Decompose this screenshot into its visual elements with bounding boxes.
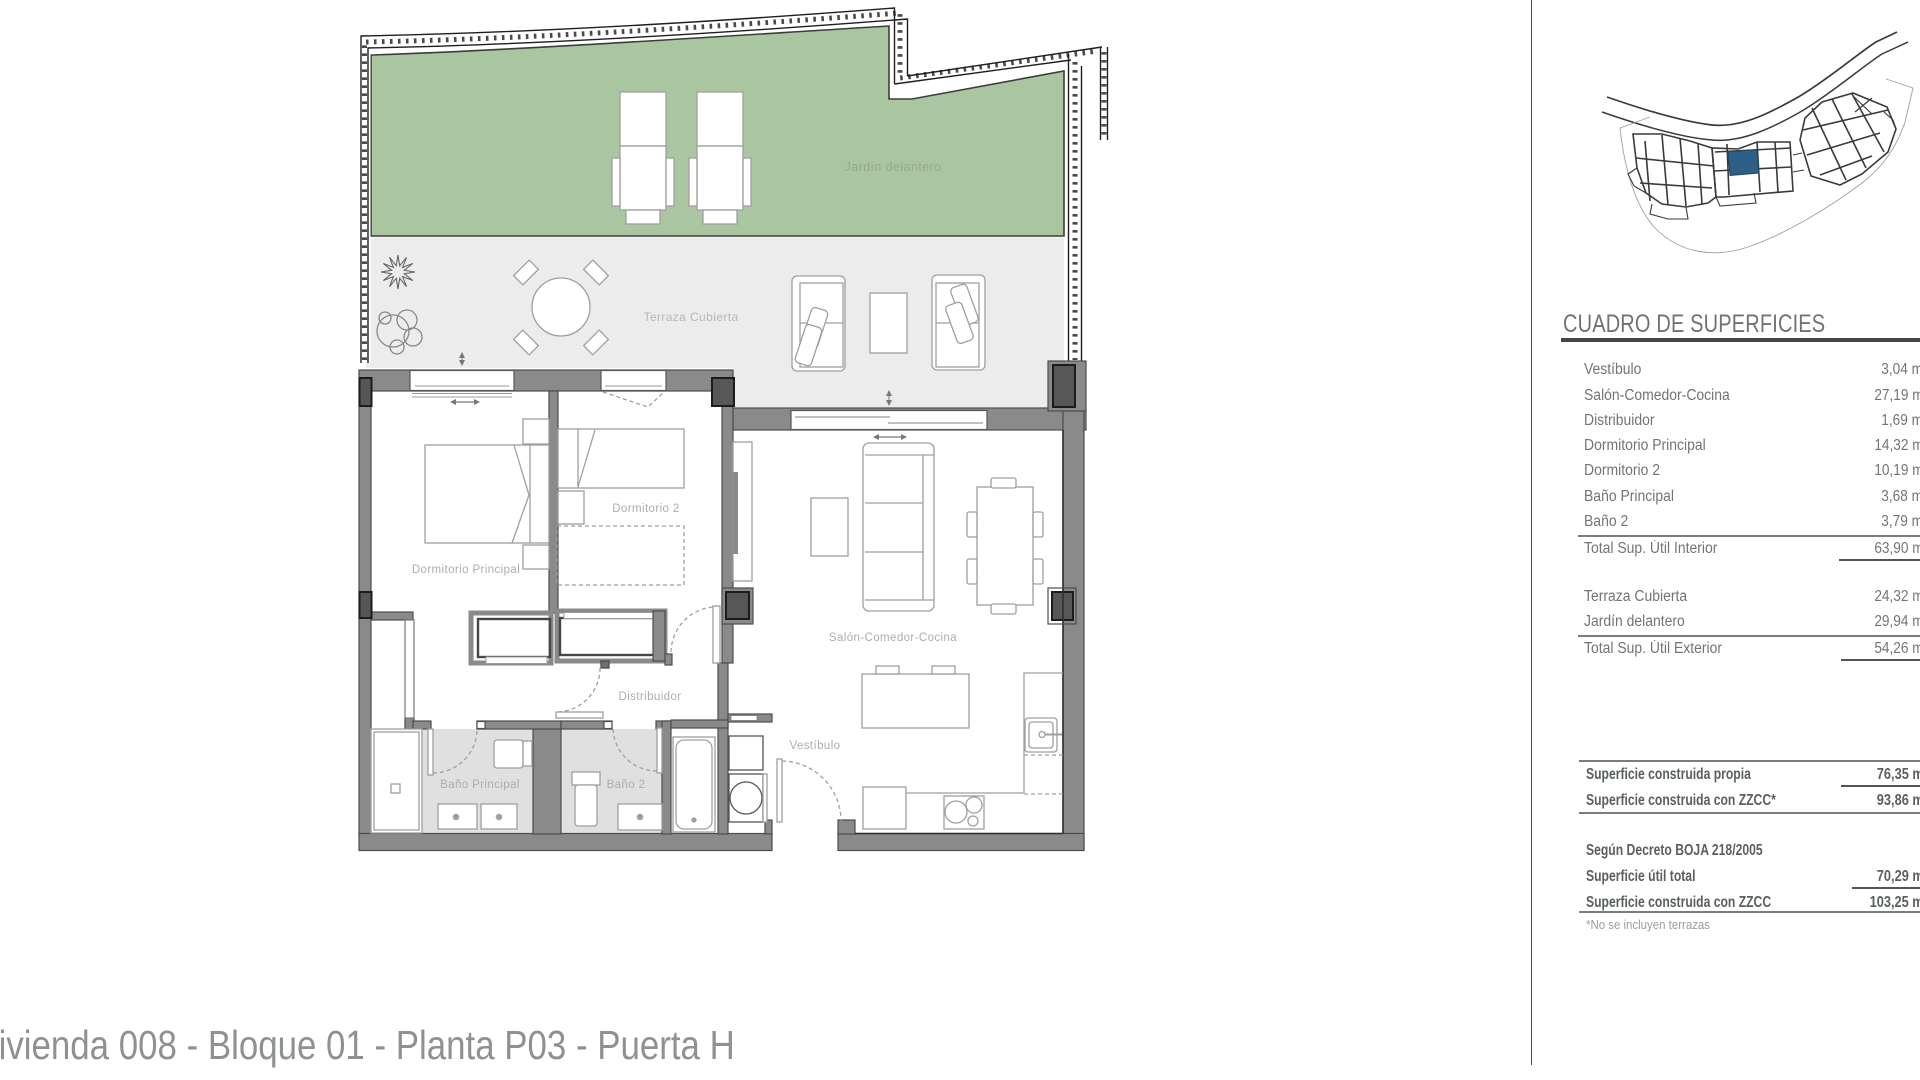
svg-text:Distribuidor: Distribuidor xyxy=(619,691,682,703)
svg-text:Baño 2: Baño 2 xyxy=(607,779,646,791)
svg-text:Dormitorio 2: Dormitorio 2 xyxy=(612,503,679,515)
svg-text:Baño Principal: Baño Principal xyxy=(440,779,520,791)
svg-text:Vestíbulo: Vestíbulo xyxy=(790,740,841,752)
svg-text:Salón-Comedor-Cocina: Salón-Comedor-Cocina xyxy=(829,632,957,644)
svg-text:Terraza Cubierta: Terraza Cubierta xyxy=(643,310,738,324)
svg-text:Dormitorio Principal: Dormitorio Principal xyxy=(412,564,520,576)
svg-text:Jardín delantero: Jardín delantero xyxy=(845,160,942,174)
